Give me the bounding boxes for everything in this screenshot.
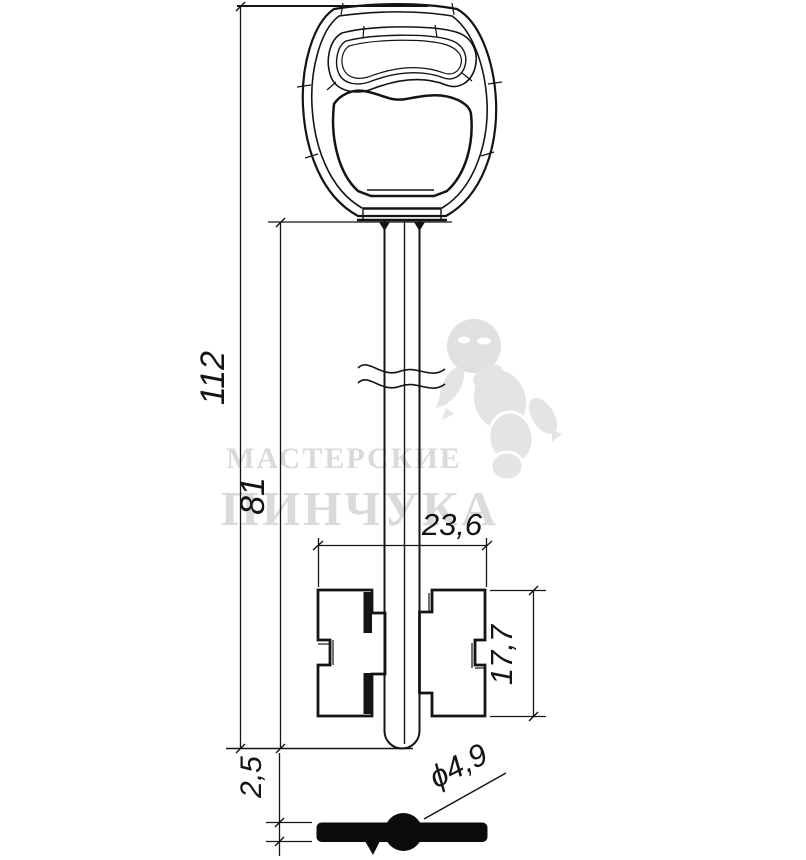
shaft-fillet bbox=[414, 222, 425, 231]
mascot-claw bbox=[552, 430, 562, 442]
key-head bbox=[297, 3, 502, 220]
dimension-label-23-6: 23,6 bbox=[421, 507, 483, 542]
head-hole-inner bbox=[342, 40, 461, 78]
watermark-line1: МАСТЕРСКИЕ bbox=[226, 442, 462, 475]
dimension-2-5 bbox=[266, 753, 312, 856]
head-recess bbox=[333, 91, 472, 196]
bit-left-flag-edge-shading bbox=[364, 673, 373, 714]
mascot-claw bbox=[442, 408, 454, 420]
shaft-fillet bbox=[379, 222, 390, 231]
dimension-label-112: 112 bbox=[194, 351, 232, 405]
section-notch bbox=[365, 841, 380, 855]
key-bit bbox=[318, 590, 486, 716]
shaft-rounded-tip bbox=[385, 731, 420, 749]
cross-section-view bbox=[317, 813, 488, 855]
dimension-label-2-5: 2,5 bbox=[235, 756, 268, 799]
dimension-112 bbox=[236, 2, 245, 753]
dimension-23-6 bbox=[313, 538, 492, 587]
mascot-body-segment bbox=[491, 452, 523, 480]
mascot-eye bbox=[477, 338, 491, 345]
key-technical-drawing: МАСТЕРСКИЕ ПИНЧУКА bbox=[0, 0, 806, 860]
dimension-label-17-7: 17,7 bbox=[484, 623, 519, 685]
watermark: МАСТЕРСКИЕ ПИНЧУКА bbox=[221, 319, 563, 536]
mascot-eye bbox=[458, 337, 470, 344]
shaft-break-line bbox=[358, 380, 445, 388]
bit-left-flag-edge-shading bbox=[364, 592, 373, 633]
bit-left-flag bbox=[318, 590, 385, 716]
dimension-label-81: 81 bbox=[234, 477, 272, 515]
shaft-break-line bbox=[358, 365, 445, 373]
head-hole-middle bbox=[337, 35, 466, 84]
key-technical-drawing-page: МАСТЕРСКИЕ ПИНЧУКА bbox=[0, 0, 806, 860]
head-hole-outer bbox=[328, 27, 476, 92]
head-collar bbox=[357, 209, 447, 220]
head-inner-contour bbox=[312, 12, 487, 208]
section-shaft-circle bbox=[385, 813, 423, 851]
